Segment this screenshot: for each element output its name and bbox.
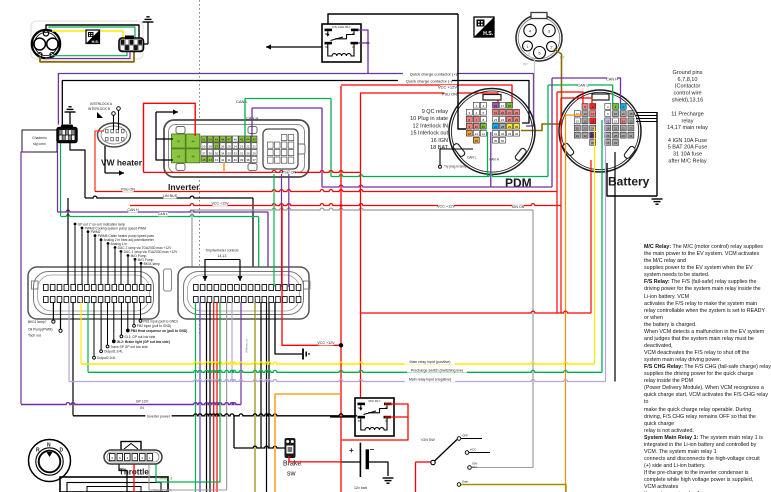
svg-text:50: 50 [208,138,212,142]
svg-text:27: 27 [494,125,498,129]
svg-text:25: 25 [508,118,512,122]
svg-text:1: 1 [527,45,529,49]
svg-text:12v batt: 12v batt [354,486,367,490]
svg-text:PB3 Heat sequence on (pull to: PB3 Heat sequence on (pull to GND) [131,329,188,333]
svg-text:Whitney br: Whitney br [245,339,249,353]
svg-text:PP: PP [523,63,528,67]
svg-text:14: 14 [482,132,486,136]
svg-text:10: 10 [475,125,479,129]
svg-text:32: 32 [583,134,587,138]
svg-text:Inverter: Inverter [168,182,200,192]
svg-text:IGN ON: IGN ON [512,205,525,209]
svg-text:28: 28 [208,145,212,149]
svg-text:47: 47 [177,140,181,144]
svg-text:33: 33 [508,132,512,136]
svg-text:Main relay input (negative): Main relay input (negative) [409,378,451,382]
svg-text:44: 44 [246,138,250,142]
svg-text:LIN BUS: LIN BUS [163,194,178,198]
svg-text:5: 5 [538,50,541,55]
svg-text:H.S.: H.S. [483,31,494,37]
svg-text:N: N [47,443,51,449]
svg-text:34: 34 [614,141,618,145]
svg-text:CAN H: CAN H [127,208,139,212]
svg-text:23: 23 [240,145,244,149]
svg-text:PSU ON: PSU ON [442,92,457,97]
svg-text:21: 21 [508,111,512,115]
svg-text:Battery: Battery [608,175,650,189]
svg-text:relay: relay [682,118,694,124]
svg-text:H.S.: H.S. [92,40,99,44]
svg-text:10: 10 [583,119,587,123]
svg-text:26: 26 [606,134,610,138]
svg-text:VCC +12V: VCC +12V [438,85,457,90]
svg-text:41: 41 [227,158,231,162]
svg-text:CAN L: CAN L [236,99,249,104]
svg-text:46: 46 [234,138,238,142]
svg-text:27: 27 [215,145,219,149]
svg-text:29: 29 [202,145,206,149]
svg-text:31: 31 [240,151,244,155]
svg-text:45: 45 [202,158,206,162]
svg-text:13: 13 [475,132,479,136]
svg-text:10 Plug in state: 10 Plug in state [410,116,448,122]
svg-text:ON: ON [472,465,477,469]
svg-text:Output2 2/4L: Output2 2/4L [97,356,116,360]
svg-text:Main relay input (positive): Main relay input (positive) [410,360,451,364]
svg-text:37: 37 [253,158,257,162]
svg-text:VW heater: VW heater [101,158,143,168]
svg-text:14-13: 14-13 [218,254,227,258]
svg-text:31: 31 [494,132,498,136]
svg-text:28: 28 [614,134,618,138]
svg-text:Oil Pump(PWM): Oil Pump(PWM) [28,328,53,332]
svg-text:Chademo: Chademo [32,136,47,140]
svg-text:Inverter power: Inverter power [147,414,171,418]
svg-text:19: 19 [494,111,498,115]
svg-text:16 IGN: 16 IGN [431,138,448,144]
svg-text:35: 35 [215,151,219,155]
svg-text:32: 32 [234,151,238,155]
svg-text:10: 10 [614,112,618,116]
svg-text:Output1 2/4L: Output1 2/4L [104,350,123,354]
svg-text:Quick charge contactor (-): Quick charge contactor (-) [406,79,453,84]
svg-text:18: 18 [508,104,512,108]
svg-text:6,7,8,10: 6,7,8,10 [678,77,698,83]
svg-text:VCC +12V: VCC +12V [437,204,456,208]
svg-text:IGN SW: IGN SW [421,438,435,442]
svg-text:13: 13 [629,119,633,123]
svg-text:29: 29 [253,151,257,155]
svg-text:33: 33 [227,151,231,155]
svg-text:PB2 input (pull to GND): PB2 input (pull to GND) [137,324,171,328]
svg-text:GP 12V: GP 12V [136,399,149,403]
svg-text:29: 29 [508,125,512,129]
svg-text:−: − [370,445,375,454]
svg-text:35: 35 [494,139,498,143]
svg-text:29: 29 [622,134,626,138]
svg-text:38: 38 [246,158,250,162]
svg-text:12 Interlock IN: 12 Interlock IN [413,123,448,129]
svg-text:18: 18 [606,127,610,131]
svg-text:26: 26 [515,118,519,122]
svg-text:21: 21 [622,127,626,131]
svg-text:Tmp/tw/meter controls: Tmp/tw/meter controls [205,249,239,253]
svg-text:48: 48 [221,138,225,142]
svg-text:sig conn: sig conn [33,142,46,146]
svg-text:30: 30 [515,125,519,129]
svg-text:15 Interlock out: 15 Interlock out [410,131,448,137]
svg-text:PB1 input (pull to GND): PB1 input (pull to GND) [143,319,177,323]
svg-text:44: 44 [191,140,195,144]
svg-text:Throttle 1(2): Throttle 1(2) [153,489,171,492]
svg-text:PDM: PDM [505,176,532,190]
svg-text:44: 44 [208,158,212,162]
svg-text:11: 11 [482,125,485,129]
svg-text:Try plug in lamp: Try plug in lamp [444,165,467,169]
svg-text:INTERLOCK B: INTERLOCK B [88,107,111,111]
svg-text:15: 15 [475,139,479,143]
svg-text:CAN L: CAN L [467,156,477,160]
svg-text:VCC +12V: VCC +12V [211,202,229,206]
svg-text:37: 37 [202,151,206,155]
svg-text:BK01 lamp: BK01 lamp [144,262,160,266]
svg-text:51: 51 [202,138,206,142]
svg-text:4: 4 [529,28,532,33]
svg-text:36: 36 [501,139,505,143]
svg-text:39: 39 [240,158,244,162]
svg-text:+: + [349,446,354,455]
svg-text:49: 49 [215,138,219,142]
svg-text:43: 43 [253,138,257,142]
svg-text:16: 16 [629,112,633,116]
svg-text:Ground pins: Ground pins [673,70,703,76]
svg-text:16: 16 [591,112,595,116]
svg-text:Throttle 3: Throttle 3 [158,477,172,481]
svg-text:26: 26 [221,145,225,149]
svg-text:after M/C Relay: after M/C Relay [668,158,706,164]
svg-text:BK01 lamp?: BK01 lamp? [28,320,47,324]
svg-text:control wire: control wire [673,91,701,97]
svg-text:9 QC relay: 9 QC relay [422,109,449,115]
svg-text:21: 21 [253,145,257,149]
svg-text:14,17 main relay: 14,17 main relay [667,125,708,131]
svg-text:11: 11 [622,112,625,116]
svg-text:24: 24 [234,145,238,149]
svg-text:D: D [60,448,64,454]
svg-text:Trans SP GP out low side: Trans SP GP out low side [110,345,148,349]
svg-text:28: 28 [501,125,505,129]
svg-text:22: 22 [515,111,519,115]
svg-text:PSU ON: PSU ON [282,171,297,175]
svg-text:40: 40 [234,158,238,162]
svg-text:31 10A fuse: 31 10A fuse [673,152,702,158]
svg-text:15: 15 [614,119,618,123]
svg-text:18 BAT: 18 BAT [430,145,449,151]
svg-text:22: 22 [614,127,618,131]
svg-text:23: 23 [583,127,587,131]
svg-text:32: 32 [501,132,505,136]
svg-text:42: 42 [221,158,225,162]
svg-text:PSU ON: PSU ON [121,188,135,192]
svg-text:CAN L: CAN L [158,212,169,216]
svg-text:5 BAT 20A Fuse: 5 BAT 20A Fuse [668,145,708,151]
svg-text:F/S CHG RLY: F/S CHG RLY [332,25,351,29]
svg-text:(Contactor: (Contactor [675,84,701,90]
svg-text:23: 23 [494,118,498,122]
svg-text:IN: IN [140,406,144,410]
svg-text:47: 47 [227,138,231,142]
svg-text:INTERLOCK A: INTERLOCK A [90,102,113,106]
svg-text:Start: Start [462,480,469,484]
svg-text:34: 34 [515,132,519,136]
svg-text:2: 2 [551,45,553,49]
svg-text:GL1: GP out low side: GL1: GP out low side [124,335,155,339]
svg-text:30: 30 [246,151,250,155]
svg-text:36: 36 [208,151,212,155]
svg-text:M/C RLY: M/C RLY [369,399,381,403]
svg-text:15: 15 [606,141,610,145]
svg-text:Tach out: Tach out [28,334,41,338]
svg-text:34: 34 [221,151,225,155]
svg-text:3: 3 [548,28,551,33]
svg-text:shield),13,16: shield),13,16 [672,97,704,103]
svg-text:24: 24 [501,118,505,122]
svg-text:45: 45 [240,138,244,142]
svg-text:16: 16 [494,104,498,108]
svg-text:43: 43 [215,158,219,162]
svg-text:14: 14 [622,119,626,123]
svg-text:25: 25 [227,145,231,149]
svg-text:20: 20 [576,127,580,131]
svg-text:11 Precharge: 11 Precharge [671,112,704,118]
svg-text:11: 11 [591,119,594,123]
svg-text:VCC +12V: VCC +12V [317,341,335,345]
svg-text:R: R [36,448,40,454]
svg-text:GL2: Brake light (GP out low s: GL2: Brake light (GP out low side) [117,340,170,344]
svg-text:46: 46 [191,154,195,158]
svg-text:sw: sw [287,471,297,478]
svg-text:OFF: OFF [462,434,468,438]
svg-text:CAN L: CAN L [577,84,588,88]
svg-text:12: 12 [606,119,610,123]
svg-text:30: 30 [576,134,580,138]
svg-text:31: 31 [629,134,633,138]
svg-text:43: 43 [177,154,181,158]
svg-text:22: 22 [246,145,250,149]
svg-text:12: 12 [468,132,472,136]
svg-text:23: 23 [629,127,633,131]
svg-text:Precharge switch (switching lo: Precharge switch (switching low) [411,368,463,372]
svg-text:ACC: ACC [470,448,477,452]
svg-text:19: 19 [576,119,580,123]
svg-text:17: 17 [501,104,505,108]
svg-text:20: 20 [501,111,505,115]
svg-text:Quick charge contactor (+): Quick charge contactor (+) [410,72,458,77]
svg-text:4 IGN 10A Fuse: 4 IGN 10A Fuse [668,138,707,144]
svg-text:13: 13 [583,112,587,116]
svg-text:CAN H: CAN H [606,78,618,82]
